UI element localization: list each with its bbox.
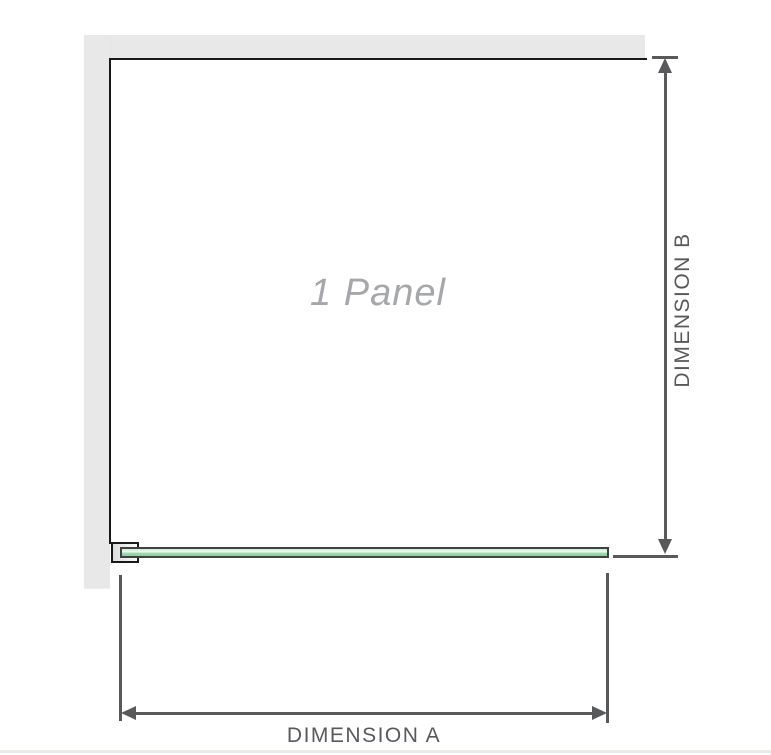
panel-count-label: 1 Panel	[109, 272, 647, 315]
panel-outline-top-edge	[109, 58, 647, 60]
arrowhead-down-icon	[658, 539, 672, 554]
dimension-b-tick-bottom	[613, 555, 678, 558]
dimension-b-line	[664, 63, 667, 549]
wall-strip-top	[84, 35, 645, 59]
extension-line-right	[606, 573, 609, 723]
arrowhead-left-icon	[121, 706, 136, 720]
extension-line-left	[119, 575, 122, 721]
dimension-a-line	[133, 712, 594, 715]
dimension-b-label: DIMENSION B	[671, 232, 695, 387]
arrowhead-right-icon	[592, 706, 607, 720]
arrowhead-up-icon	[658, 58, 672, 73]
panel-dimension-diagram: 1 Panel DIMENSION B DIMENSION A	[0, 0, 771, 755]
wall-strip-left	[84, 35, 110, 588]
glass-panel	[120, 547, 609, 558]
dimension-a-label: DIMENSION A	[287, 724, 441, 748]
bottom-rule	[0, 750, 771, 753]
